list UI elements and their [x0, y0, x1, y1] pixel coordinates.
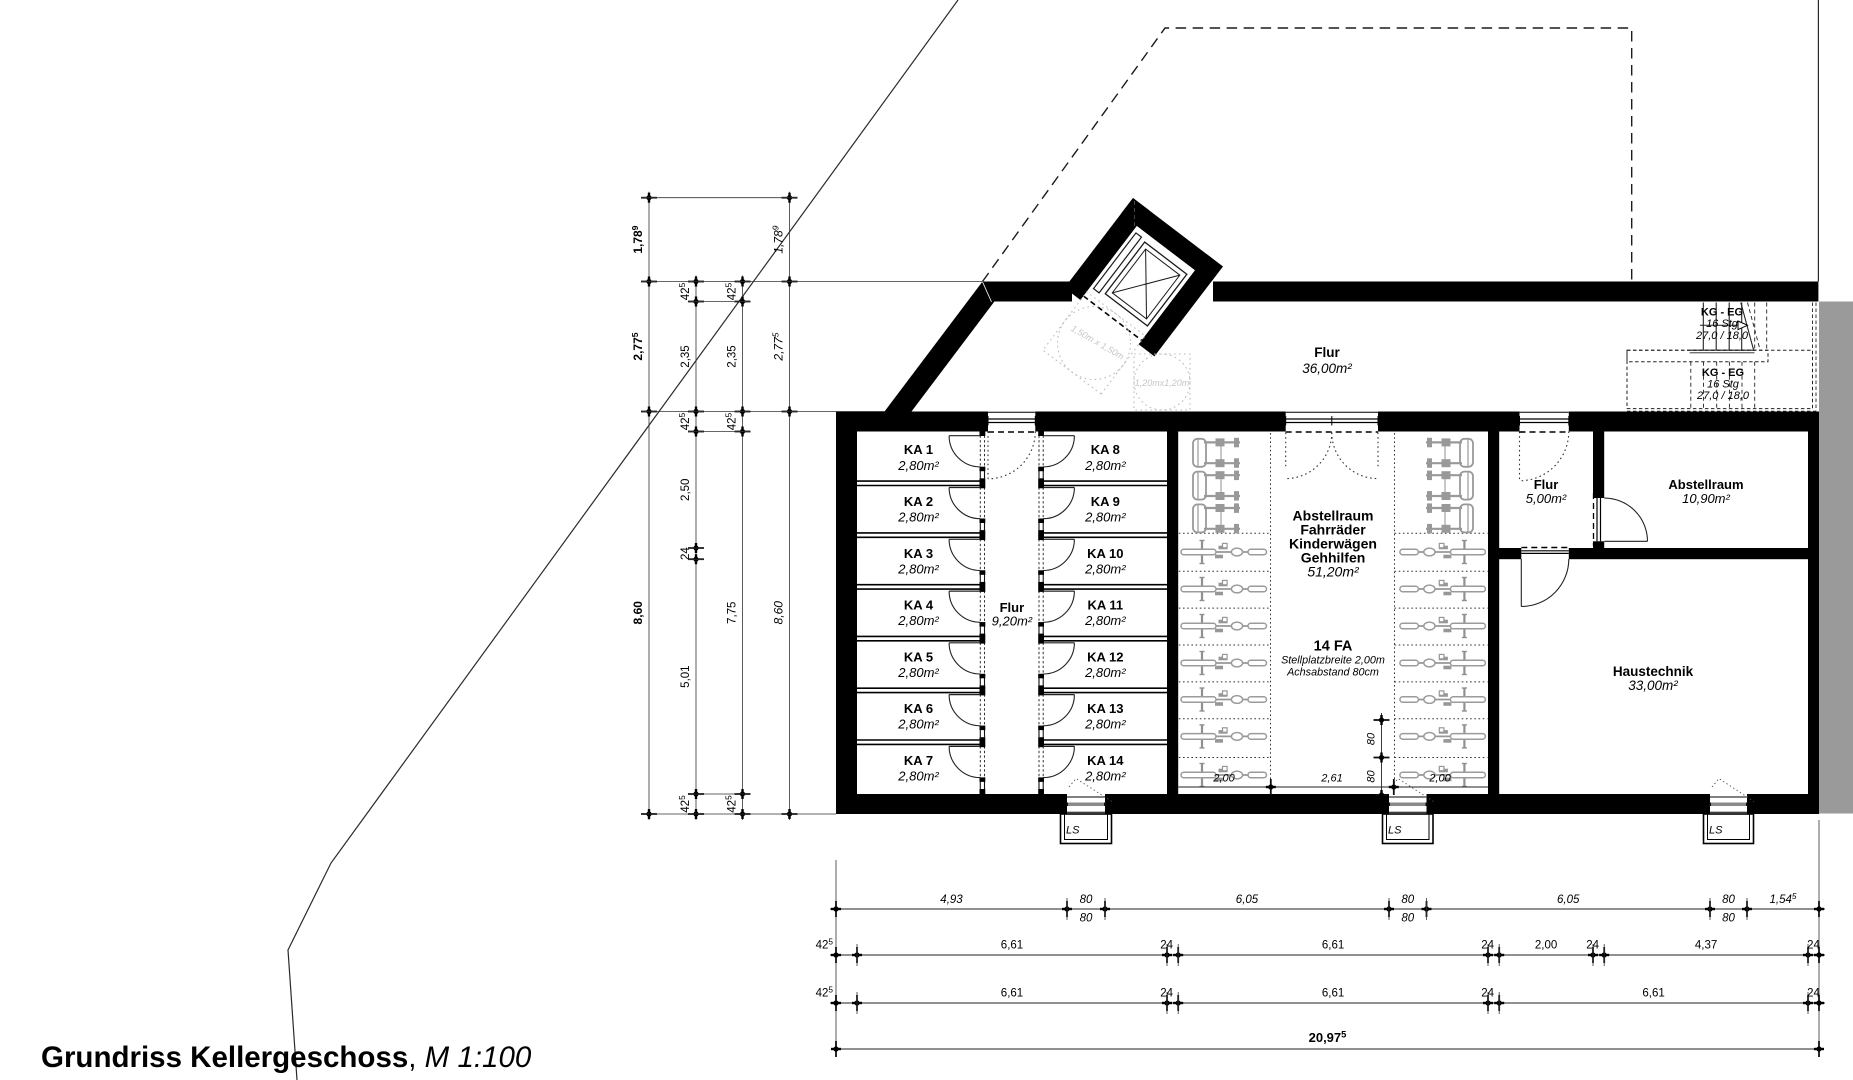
svg-text:80: 80: [1401, 913, 1414, 925]
svg-text:80: 80: [1722, 913, 1735, 925]
svg-text:2,80m²: 2,80m²: [1084, 613, 1126, 628]
svg-text:1,20mx1,20m: 1,20mx1,20m: [1135, 378, 1190, 388]
svg-text:KA 9: KA 9: [1091, 494, 1120, 509]
svg-text:2,80m²: 2,80m²: [897, 769, 939, 784]
svg-text:KA 3: KA 3: [904, 546, 933, 561]
svg-text:2,50: 2,50: [680, 479, 692, 501]
svg-text:80: 80: [1401, 894, 1414, 906]
svg-text:36,00m²: 36,00m²: [1302, 361, 1352, 376]
svg-text:7,75: 7,75: [727, 602, 739, 624]
svg-text:KA 2: KA 2: [904, 494, 933, 509]
svg-text:8,60: 8,60: [772, 601, 786, 625]
svg-text:KA 6: KA 6: [904, 701, 933, 716]
svg-text:6,61: 6,61: [1001, 940, 1023, 952]
svg-text:6,61: 6,61: [1322, 940, 1344, 952]
svg-text:5,00m²: 5,00m²: [1526, 491, 1567, 506]
svg-text:KA 14: KA 14: [1087, 753, 1124, 768]
svg-text:9,20m²: 9,20m²: [992, 614, 1033, 629]
svg-text:24: 24: [1807, 940, 1820, 952]
svg-text:Haustechnik: Haustechnik: [1613, 664, 1694, 679]
svg-text:10,90m²: 10,90m²: [1682, 491, 1730, 506]
svg-text:2,00: 2,00: [1212, 773, 1235, 785]
svg-text:80: 80: [1722, 894, 1735, 906]
svg-text:LS: LS: [1066, 825, 1080, 837]
svg-text:2,80m²: 2,80m²: [897, 613, 939, 628]
svg-text:6,61: 6,61: [1642, 988, 1664, 1000]
svg-text:KA 8: KA 8: [1091, 442, 1120, 457]
svg-text:2,00: 2,00: [1428, 773, 1451, 785]
svg-text:2,61: 2,61: [1320, 773, 1342, 785]
svg-text:24: 24: [1481, 940, 1494, 952]
svg-text:KA 11: KA 11: [1087, 598, 1123, 613]
svg-text:80: 80: [1366, 732, 1378, 745]
svg-text:80: 80: [1080, 913, 1093, 925]
svg-text:2,80m²: 2,80m²: [1084, 458, 1126, 473]
svg-text:27,0 / 18,0: 27,0 / 18,0: [1695, 330, 1749, 342]
svg-text:6,61: 6,61: [1001, 988, 1023, 1000]
svg-text:24: 24: [1160, 988, 1173, 1000]
svg-text:KA 12: KA 12: [1087, 649, 1123, 664]
svg-text:2,80m²: 2,80m²: [897, 561, 939, 576]
svg-text:6,61: 6,61: [1322, 988, 1344, 1000]
svg-text:2,35: 2,35: [680, 345, 692, 367]
svg-text:80: 80: [1366, 770, 1378, 783]
svg-text:KA 4: KA 4: [904, 598, 934, 613]
svg-text:6,05: 6,05: [1557, 894, 1580, 906]
svg-text:KA 7: KA 7: [904, 753, 933, 768]
svg-text:14 FA: 14 FA: [1314, 639, 1353, 655]
svg-text:2,80m²: 2,80m²: [1084, 717, 1126, 732]
svg-text:Flur: Flur: [1534, 477, 1559, 492]
svg-text:51,20m²: 51,20m²: [1307, 564, 1360, 580]
svg-text:2,80m²: 2,80m²: [1084, 510, 1126, 525]
svg-text:KA 1: KA 1: [904, 442, 933, 457]
svg-text:2,00: 2,00: [1535, 940, 1557, 952]
svg-text:KG - EG: KG - EG: [1702, 367, 1744, 379]
svg-text:6,05: 6,05: [1236, 894, 1259, 906]
svg-text:Flur: Flur: [1314, 345, 1340, 360]
svg-text:2,80m²: 2,80m²: [897, 717, 939, 732]
svg-text:Abstellraum: Abstellraum: [1668, 477, 1743, 492]
svg-text:5,01: 5,01: [680, 665, 692, 687]
svg-text:33,00m²: 33,00m²: [1628, 678, 1678, 693]
svg-text:27,0 / 18,0: 27,0 / 18,0: [1696, 390, 1750, 402]
svg-text:24: 24: [1160, 940, 1173, 952]
svg-text:24: 24: [1481, 988, 1494, 1000]
svg-text:Stellplatzbreite 2,00m: Stellplatzbreite 2,00m: [1281, 655, 1385, 667]
svg-text:KA 10: KA 10: [1087, 546, 1123, 561]
svg-text:2,80m²: 2,80m²: [1084, 769, 1126, 784]
svg-text:Achsabstand 80cm: Achsabstand 80cm: [1286, 667, 1379, 679]
svg-text:2,80m²: 2,80m²: [897, 458, 939, 473]
svg-text:LS: LS: [1388, 825, 1402, 837]
svg-text:24: 24: [680, 547, 692, 560]
svg-text:2,35: 2,35: [727, 345, 739, 367]
svg-text:4,37: 4,37: [1695, 940, 1717, 952]
svg-text:80: 80: [1080, 894, 1093, 906]
svg-text:8,60: 8,60: [631, 601, 645, 625]
svg-text:KA 5: KA 5: [904, 649, 933, 664]
svg-text:LS: LS: [1709, 825, 1723, 837]
svg-text:4,93: 4,93: [940, 894, 963, 906]
svg-text:Grundriss Kellergeschoss, M 1:: Grundriss Kellergeschoss, M 1:100: [41, 1041, 532, 1074]
svg-text:24: 24: [1586, 940, 1599, 952]
svg-text:24: 24: [1807, 988, 1820, 1000]
svg-text:2,80m²: 2,80m²: [897, 510, 939, 525]
svg-text:2,80m²: 2,80m²: [1084, 561, 1126, 576]
svg-text:16 Stg: 16 Stg: [1706, 318, 1739, 330]
svg-text:KG - EG: KG - EG: [1701, 307, 1743, 319]
svg-text:2,80m²: 2,80m²: [1084, 665, 1126, 680]
svg-text:KA 13: KA 13: [1087, 701, 1123, 716]
svg-text:16 Stg: 16 Stg: [1707, 379, 1740, 391]
svg-text:20,975: 20,975: [1309, 1029, 1347, 1045]
svg-text:2,80m²: 2,80m²: [897, 665, 939, 680]
